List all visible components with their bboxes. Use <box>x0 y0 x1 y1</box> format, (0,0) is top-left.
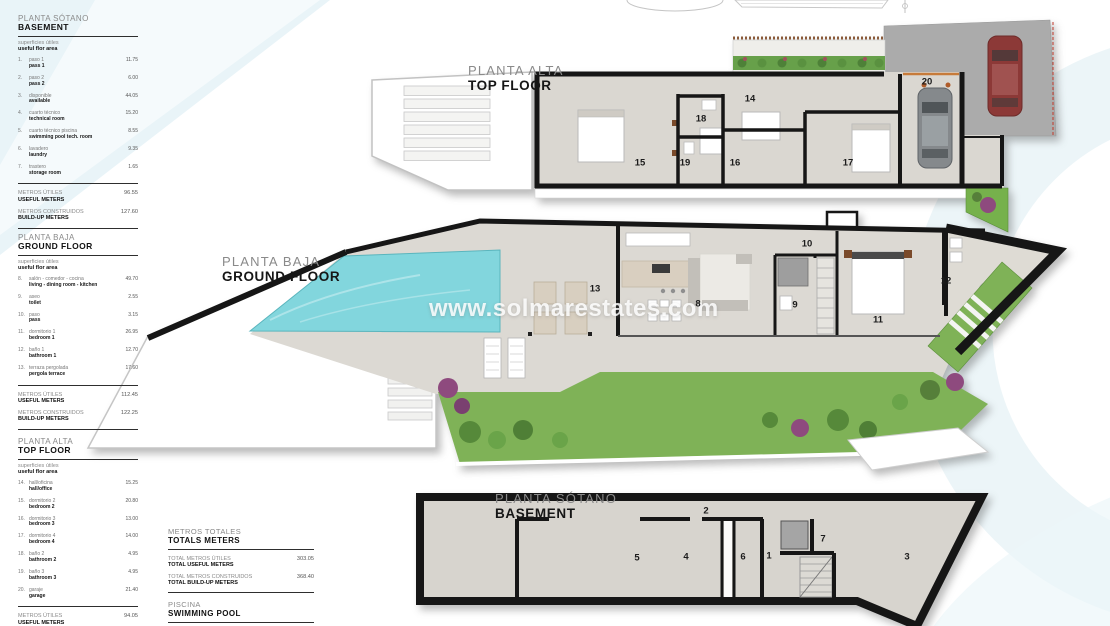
toilet <box>684 142 694 154</box>
room-label: 12 <box>941 276 952 287</box>
table-row: 7. trasterostorage room 1.65 <box>18 165 138 177</box>
table-row: 20. garajegarage 21.40 <box>18 588 138 600</box>
table-row: 11. dormitorio 1bedroom 1 26.95 <box>18 330 138 342</box>
sketch-rect <box>735 0 888 8</box>
divider <box>18 459 138 460</box>
room-label: 9 <box>792 300 797 311</box>
table-row: 8. salón - comedor - cocinaliving - dini… <box>18 277 138 289</box>
plan-label-es: PLANTA BAJA <box>222 255 340 269</box>
table-row: 1. paso 1pass 1 11.75 <box>18 58 138 70</box>
floorplan-page: www.solmarestates.com PLANTA ALTA TOP FL… <box>0 0 1110 626</box>
table-row: 6. lavaderolaundry 9.35 <box>18 147 138 159</box>
room-label: 10 <box>802 239 813 250</box>
hedge <box>733 56 885 70</box>
divider <box>18 385 138 386</box>
table-row: 9. aseotoilet 2.55 <box>18 295 138 307</box>
ground-floor-plan-label: PLANTA BAJA GROUND FLOOR <box>222 255 340 284</box>
divider <box>18 255 138 256</box>
room-label: 19 <box>680 158 691 169</box>
bed-bedroom4 <box>852 124 890 172</box>
divider <box>18 36 138 37</box>
red-car <box>988 36 1022 116</box>
table-row: 14. hall/oficinahall/office 15.25 <box>18 481 138 493</box>
table-total-row: METROS CONSTRUIDOSBUILD-UP METERS 127.60 <box>18 209 138 221</box>
totals-row: TOTAL METROS CONSTRUIDOSTOTAL BUILD-UP M… <box>168 574 314 586</box>
top-floor-area-table: PLANTA ALTA TOP FLOOR superficies útiles… <box>18 437 138 626</box>
pool-title-es: PISCINA <box>168 600 314 609</box>
plan-label-en: TOP FLOOR <box>468 78 564 93</box>
basement-area-table: PLANTA SÓTANO BASEMENT superficies útile… <box>18 14 138 232</box>
room-label: 7 <box>820 534 825 545</box>
room-label: 1 <box>766 551 771 562</box>
divider <box>168 549 314 550</box>
ground-floor-plan <box>88 212 1058 470</box>
divider <box>18 606 138 607</box>
office-desk <box>742 112 780 140</box>
bed-bedroom2 <box>578 110 624 162</box>
room-label: 20 <box>922 77 933 88</box>
table-subtitle-en: useful flor area <box>18 469 138 475</box>
room-label: 2 <box>703 506 708 517</box>
room-label: 16 <box>730 158 741 169</box>
plan-label-en: GROUND FLOOR <box>222 269 340 284</box>
staircase <box>817 258 834 334</box>
totals-row: TOTAL METROS ÚTILESTOTAL USEFUL METERS 3… <box>168 556 314 568</box>
table-row: 18. baño 2bathroom 2 4.95 <box>18 552 138 564</box>
room-label: 3 <box>904 552 909 563</box>
corridor-floor <box>724 521 732 597</box>
table-subtitle-en: useful flor area <box>18 265 138 271</box>
plan-label-es: PLANTA SÓTANO <box>495 492 617 506</box>
table-row: 4. cuarto técnicotechnical room 15.20 <box>18 111 138 123</box>
totals-panel: METROS TOTALES TOTALS METERS TOTAL METRO… <box>168 527 314 626</box>
gray-car <box>918 88 952 168</box>
table-row: 2. paso 2pass 2 6.00 <box>18 76 138 88</box>
table-row: 17. dormitorio 4bedroom 4 14.00 <box>18 534 138 546</box>
ground-floor-area-table: PLANTA BAJA GROUND FLOOR superficies úti… <box>18 233 138 433</box>
pool-title-en: SWIMMING POOL <box>168 609 314 619</box>
divider <box>18 228 138 229</box>
bathtub <box>700 128 722 154</box>
table-row: 3. disponibleavailable 44.05 <box>18 94 138 106</box>
room-label: 13 <box>590 284 601 295</box>
table-title-en: TOP FLOOR <box>18 446 138 456</box>
table-row: 5. cuarto técnico piscinaswimming pool t… <box>18 129 138 141</box>
table-subtitle-en: useful flor area <box>18 46 138 52</box>
toilet <box>780 296 792 310</box>
divider <box>168 622 314 623</box>
room-label: 14 <box>745 94 756 105</box>
plan-label-es: PLANTA ALTA <box>468 64 564 78</box>
divider <box>18 429 138 430</box>
table-title-en: GROUND FLOOR <box>18 242 138 252</box>
table-total-row: METROS ÚTILESUSEFUL METERS 112.45 <box>18 392 138 404</box>
divider <box>168 592 314 593</box>
table-total-row: METROS ÚTILESUSEFUL METERS 96.55 <box>18 190 138 202</box>
shower <box>778 258 808 286</box>
table-total-row: METROS CONSTRUIDOSBUILD-UP METERS 122.25 <box>18 410 138 422</box>
sketch-ellipse <box>627 0 723 11</box>
equipment-box <box>781 521 808 549</box>
basement-plan-label: PLANTA SÓTANO BASEMENT <box>495 492 617 521</box>
watermark: www.solmarestates.com <box>429 295 719 323</box>
table-title-en: BASEMENT <box>18 23 138 33</box>
top-sketch <box>627 0 908 13</box>
table-row: 10. pasopass 3.15 <box>18 313 138 325</box>
room-label: 8 <box>695 299 700 310</box>
table-row: 16. dormitorio 3bedroom 3 13.00 <box>18 517 138 529</box>
basement-stairs <box>800 557 832 597</box>
bed-bedroom1 <box>852 252 904 314</box>
table-row: 12. baño 1bathroom 1 12.70 <box>18 348 138 360</box>
room-label: 17 <box>843 158 854 169</box>
table-row: 13. terraza pergoladapergola terrace 17.… <box>18 366 138 378</box>
plan-label-en: BASEMENT <box>495 506 617 521</box>
room-label: 11 <box>873 315 883 326</box>
kitchen-cabinets <box>626 233 690 246</box>
room-label: 18 <box>696 114 707 125</box>
totals-title-en: TOTALS METERS <box>168 536 314 546</box>
room-label: 15 <box>635 158 646 169</box>
divider <box>18 183 138 184</box>
room-label: 4 <box>683 552 688 563</box>
table-row: 19. baño 3bathroom 3 4.95 <box>18 570 138 582</box>
top-floor-plan-label: PLANTA ALTA TOP FLOOR <box>468 64 564 93</box>
table-total-row: METROS ÚTILESUSEFUL METERS 94.05 <box>18 613 138 625</box>
totals-title-es: METROS TOTALES <box>168 527 314 536</box>
sink <box>702 100 716 110</box>
room-label: 6 <box>740 552 745 563</box>
room-label: 5 <box>634 553 639 564</box>
table-row: 15. dormitorio 2bedroom 2 20.80 <box>18 499 138 511</box>
